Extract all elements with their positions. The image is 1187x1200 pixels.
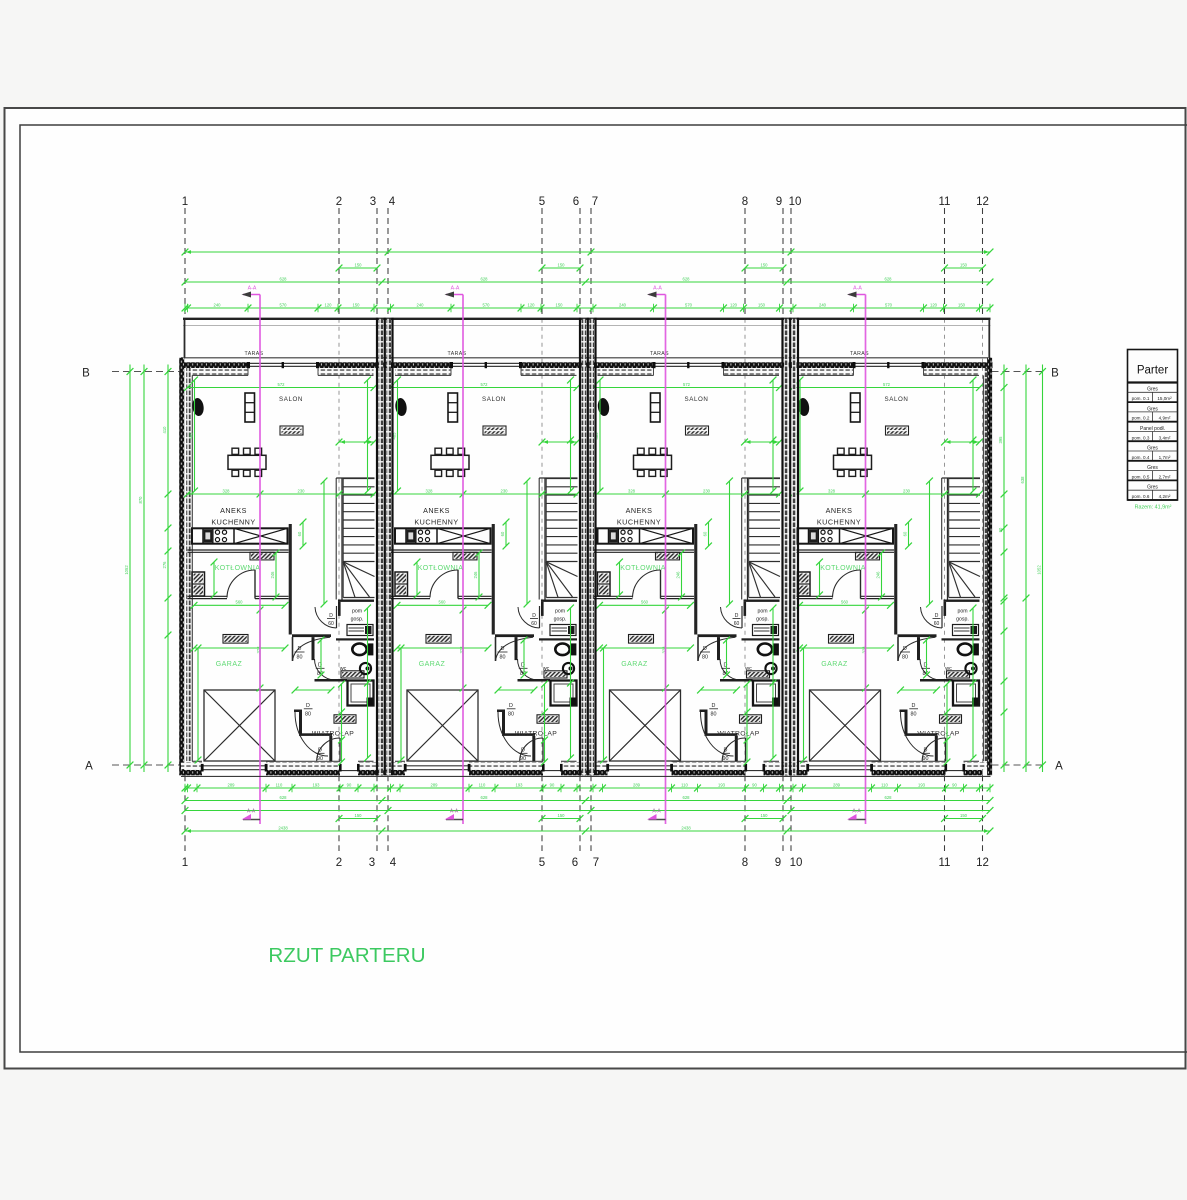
svg-text:628: 628 xyxy=(885,795,893,800)
svg-text:120: 120 xyxy=(730,302,738,307)
svg-text:SALON: SALON xyxy=(279,396,303,403)
svg-text:289: 289 xyxy=(833,782,841,787)
svg-text:D: D xyxy=(912,703,916,709)
svg-text:D: D xyxy=(724,748,728,754)
svg-text:3,4m²: 3,4m² xyxy=(1159,435,1171,440)
svg-text:150: 150 xyxy=(558,813,566,818)
svg-text:4: 4 xyxy=(390,857,397,869)
svg-text:628: 628 xyxy=(481,276,489,281)
svg-text:9: 9 xyxy=(776,196,782,208)
svg-text:pom. 0.2: pom. 0.2 xyxy=(1132,416,1150,421)
svg-text:KUCHENNY: KUCHENNY xyxy=(211,518,255,527)
svg-text:A-A: A-A xyxy=(652,809,661,815)
svg-text:395: 395 xyxy=(998,436,1003,444)
svg-text:5: 5 xyxy=(539,196,545,208)
svg-text:SALON: SALON xyxy=(685,396,709,403)
svg-text:11: 11 xyxy=(939,857,951,869)
svg-text:246: 246 xyxy=(473,571,478,579)
svg-text:110: 110 xyxy=(276,782,283,787)
svg-text:D: D xyxy=(521,748,525,754)
svg-text:11: 11 xyxy=(939,196,951,208)
svg-text:150: 150 xyxy=(353,302,361,307)
svg-text:80: 80 xyxy=(508,712,514,718)
svg-text:3: 3 xyxy=(370,196,376,208)
svg-text:Gres: Gres xyxy=(1147,485,1158,491)
svg-text:90: 90 xyxy=(752,782,757,787)
svg-text:6: 6 xyxy=(573,196,579,208)
svg-text:pom. 0.4: pom. 0.4 xyxy=(1132,455,1150,460)
svg-text:328: 328 xyxy=(426,488,434,493)
svg-text:570: 570 xyxy=(685,302,693,307)
svg-text:90: 90 xyxy=(998,527,1003,532)
svg-text:D: D xyxy=(501,646,505,652)
svg-text:A-A: A-A xyxy=(247,809,256,815)
svg-text:15,0m²: 15,0m² xyxy=(1157,396,1172,401)
svg-text:572: 572 xyxy=(683,382,691,387)
svg-text:328: 328 xyxy=(223,488,231,493)
svg-text:Panel podł.: Panel podł. xyxy=(1140,426,1165,432)
svg-text:1: 1 xyxy=(182,196,188,208)
svg-text:60: 60 xyxy=(934,621,940,627)
svg-text:B: B xyxy=(1051,368,1059,380)
svg-text:560: 560 xyxy=(236,600,244,605)
svg-text:410: 410 xyxy=(162,426,167,434)
svg-text:150: 150 xyxy=(558,262,566,267)
svg-text:193: 193 xyxy=(516,782,524,787)
svg-text:80: 80 xyxy=(902,655,908,661)
svg-text:A-A: A-A xyxy=(248,286,257,292)
svg-text:80: 80 xyxy=(305,712,311,718)
svg-text:1052: 1052 xyxy=(124,565,129,575)
svg-text:150: 150 xyxy=(355,813,363,818)
svg-text:289: 289 xyxy=(228,782,236,787)
svg-text:RZUT PARTERU: RZUT PARTERU xyxy=(268,944,425,967)
svg-text:WIATROŁAP: WIATROŁAP xyxy=(312,731,354,738)
svg-text:A-A: A-A xyxy=(450,809,459,815)
svg-text:570: 570 xyxy=(885,302,893,307)
svg-text:pom. 0.5: pom. 0.5 xyxy=(1132,475,1150,480)
svg-text:628: 628 xyxy=(885,276,893,281)
svg-text:pom. 0.6: pom. 0.6 xyxy=(1132,494,1150,499)
svg-text:KUCHENNY: KUCHENNY xyxy=(414,518,458,527)
svg-text:230: 230 xyxy=(903,488,911,493)
svg-text:150: 150 xyxy=(758,302,766,307)
svg-text:SALON: SALON xyxy=(885,396,909,403)
svg-text:570: 570 xyxy=(483,302,491,307)
svg-text:2438: 2438 xyxy=(278,825,288,830)
svg-text:572: 572 xyxy=(883,382,891,387)
svg-text:9: 9 xyxy=(775,857,781,869)
svg-text:GARAZ: GARAZ xyxy=(216,661,243,668)
svg-text:328: 328 xyxy=(628,488,636,493)
svg-text:230: 230 xyxy=(298,488,306,493)
svg-text:80: 80 xyxy=(711,712,717,718)
svg-text:230: 230 xyxy=(703,488,711,493)
svg-text:pom. 0.3: pom. 0.3 xyxy=(1132,435,1150,440)
svg-text:150: 150 xyxy=(958,302,966,307)
svg-text:gosp.: gosp. xyxy=(956,617,969,623)
svg-text:80: 80 xyxy=(297,655,303,661)
svg-text:870: 870 xyxy=(138,496,143,504)
svg-text:A: A xyxy=(85,761,93,773)
svg-text:572: 572 xyxy=(278,382,286,387)
svg-text:120: 120 xyxy=(930,302,938,307)
svg-text:90: 90 xyxy=(550,782,555,787)
svg-text:150: 150 xyxy=(556,302,564,307)
svg-text:Parter: Parter xyxy=(1137,365,1168,377)
svg-text:WIATROŁAP: WIATROŁAP xyxy=(515,731,557,738)
svg-text:D: D xyxy=(924,748,928,754)
svg-text:KOTŁOWNIA: KOTŁOWNIA xyxy=(620,565,666,572)
svg-text:12: 12 xyxy=(976,857,989,869)
svg-text:D: D xyxy=(903,646,907,652)
svg-text:8: 8 xyxy=(742,196,748,208)
svg-text:D: D xyxy=(935,613,939,619)
svg-text:230: 230 xyxy=(501,488,509,493)
svg-text:4: 4 xyxy=(389,196,396,208)
svg-text:SALON: SALON xyxy=(482,396,506,403)
svg-text:KUCHENNY: KUCHENNY xyxy=(617,518,661,527)
svg-text:628: 628 xyxy=(683,795,691,800)
svg-text:240: 240 xyxy=(619,302,627,307)
svg-text:KOTŁOWNIA: KOTŁOWNIA xyxy=(820,565,866,572)
svg-text:A-A: A-A xyxy=(853,286,862,292)
svg-text:289: 289 xyxy=(431,782,439,787)
svg-text:193: 193 xyxy=(718,782,726,787)
svg-text:GARAZ: GARAZ xyxy=(419,661,446,668)
svg-text:80: 80 xyxy=(911,712,917,718)
svg-text:193: 193 xyxy=(918,782,926,787)
svg-text:328: 328 xyxy=(828,488,836,493)
svg-text:Gres: Gres xyxy=(1147,387,1158,393)
svg-text:10: 10 xyxy=(790,857,803,869)
svg-text:10: 10 xyxy=(789,196,802,208)
svg-text:150: 150 xyxy=(960,813,968,818)
svg-text:560: 560 xyxy=(841,600,849,605)
svg-text:B: B xyxy=(82,368,90,380)
svg-text:ANEKS: ANEKS xyxy=(626,506,653,515)
svg-text:60: 60 xyxy=(297,531,302,536)
svg-text:KUCHENNY: KUCHENNY xyxy=(817,518,861,527)
svg-text:110: 110 xyxy=(479,782,486,787)
svg-text:289: 289 xyxy=(633,782,641,787)
svg-text:90: 90 xyxy=(317,756,323,762)
svg-text:2438: 2438 xyxy=(681,825,691,830)
svg-text:pom: pom xyxy=(957,609,967,615)
svg-text:150: 150 xyxy=(761,262,769,267)
svg-text:1,7m²: 1,7m² xyxy=(1159,455,1171,460)
svg-text:4,9m²: 4,9m² xyxy=(1159,416,1171,421)
svg-text:gosp.: gosp. xyxy=(351,617,364,623)
svg-text:90: 90 xyxy=(347,782,352,787)
svg-text:80: 80 xyxy=(702,655,708,661)
svg-text:2: 2 xyxy=(336,857,342,869)
svg-text:D: D xyxy=(712,703,716,709)
svg-text:628: 628 xyxy=(280,276,288,281)
svg-text:A-A: A-A xyxy=(653,286,662,292)
svg-text:5: 5 xyxy=(539,857,545,869)
svg-text:D: D xyxy=(703,646,707,652)
svg-text:2,7m²: 2,7m² xyxy=(1159,475,1171,480)
svg-text:60: 60 xyxy=(500,531,505,536)
svg-text:pom. 0.1: pom. 0.1 xyxy=(1132,396,1150,401)
svg-text:WIATROŁAP: WIATROŁAP xyxy=(717,731,759,738)
svg-text:pom: pom xyxy=(352,609,362,615)
svg-text:240: 240 xyxy=(819,302,827,307)
svg-text:150: 150 xyxy=(761,813,769,818)
svg-text:A-A: A-A xyxy=(852,809,861,815)
svg-text:D: D xyxy=(329,613,333,619)
svg-text:570: 570 xyxy=(280,302,288,307)
svg-text:KOTŁOWNIA: KOTŁOWNIA xyxy=(418,565,464,572)
svg-text:gosp.: gosp. xyxy=(756,617,769,623)
svg-text:2: 2 xyxy=(336,196,342,208)
svg-text:193: 193 xyxy=(313,782,321,787)
svg-text:Gres: Gres xyxy=(1147,406,1158,412)
svg-text:Razem: 41,9m²: Razem: 41,9m² xyxy=(1135,505,1172,511)
svg-text:D: D xyxy=(318,748,322,754)
svg-text:572: 572 xyxy=(481,382,489,387)
svg-text:WIATROŁAP: WIATROŁAP xyxy=(917,731,959,738)
svg-text:110: 110 xyxy=(681,782,688,787)
svg-text:485: 485 xyxy=(189,432,194,440)
svg-text:90: 90 xyxy=(952,782,957,787)
svg-text:D: D xyxy=(298,646,302,652)
svg-text:628: 628 xyxy=(280,795,288,800)
svg-text:A-A: A-A xyxy=(451,286,460,292)
svg-text:150: 150 xyxy=(355,262,363,267)
svg-text:D: D xyxy=(735,613,739,619)
svg-text:246: 246 xyxy=(876,571,881,579)
svg-text:GARAZ: GARAZ xyxy=(621,661,648,668)
svg-text:276: 276 xyxy=(162,561,167,569)
svg-text:1052: 1052 xyxy=(1037,565,1042,575)
svg-text:80: 80 xyxy=(500,655,506,661)
svg-text:560: 560 xyxy=(641,600,649,605)
svg-text:ANEKS: ANEKS xyxy=(220,506,247,515)
svg-text:D: D xyxy=(509,703,513,709)
svg-text:240: 240 xyxy=(214,302,222,307)
svg-text:246: 246 xyxy=(270,571,275,579)
svg-text:560: 560 xyxy=(439,600,447,605)
svg-text:638: 638 xyxy=(1020,476,1025,484)
svg-text:KOTŁOWNIA: KOTŁOWNIA xyxy=(215,565,261,572)
svg-text:246: 246 xyxy=(676,571,681,579)
svg-text:D: D xyxy=(306,703,310,709)
svg-text:90: 90 xyxy=(520,756,526,762)
svg-text:12: 12 xyxy=(976,196,989,208)
svg-text:GARAZ: GARAZ xyxy=(821,661,848,668)
svg-text:D: D xyxy=(532,613,536,619)
svg-text:90: 90 xyxy=(923,756,929,762)
svg-text:ANEKS: ANEKS xyxy=(423,506,450,515)
svg-text:gosp.: gosp. xyxy=(554,617,567,623)
svg-text:60: 60 xyxy=(734,621,740,627)
svg-text:6: 6 xyxy=(572,857,578,869)
svg-text:120: 120 xyxy=(325,302,333,307)
svg-text:60: 60 xyxy=(328,621,334,627)
svg-text:4,2m²: 4,2m² xyxy=(1159,494,1171,499)
svg-text:628: 628 xyxy=(683,276,691,281)
svg-text:60: 60 xyxy=(531,621,537,627)
svg-text:pom: pom xyxy=(555,609,565,615)
svg-text:60: 60 xyxy=(703,531,708,536)
svg-text:150: 150 xyxy=(960,262,968,267)
svg-text:90: 90 xyxy=(723,756,729,762)
svg-text:8: 8 xyxy=(742,857,748,869)
svg-text:120: 120 xyxy=(528,302,536,307)
svg-text:110: 110 xyxy=(881,782,888,787)
svg-text:1: 1 xyxy=(182,857,188,869)
svg-text:pom: pom xyxy=(757,609,767,615)
svg-text:3: 3 xyxy=(369,857,375,869)
svg-text:7: 7 xyxy=(592,196,598,208)
svg-text:7: 7 xyxy=(593,857,599,869)
svg-text:60: 60 xyxy=(903,531,908,536)
svg-text:A: A xyxy=(1055,761,1063,773)
svg-text:ANEKS: ANEKS xyxy=(826,506,853,515)
svg-text:240: 240 xyxy=(417,302,425,307)
svg-text:628: 628 xyxy=(481,795,489,800)
